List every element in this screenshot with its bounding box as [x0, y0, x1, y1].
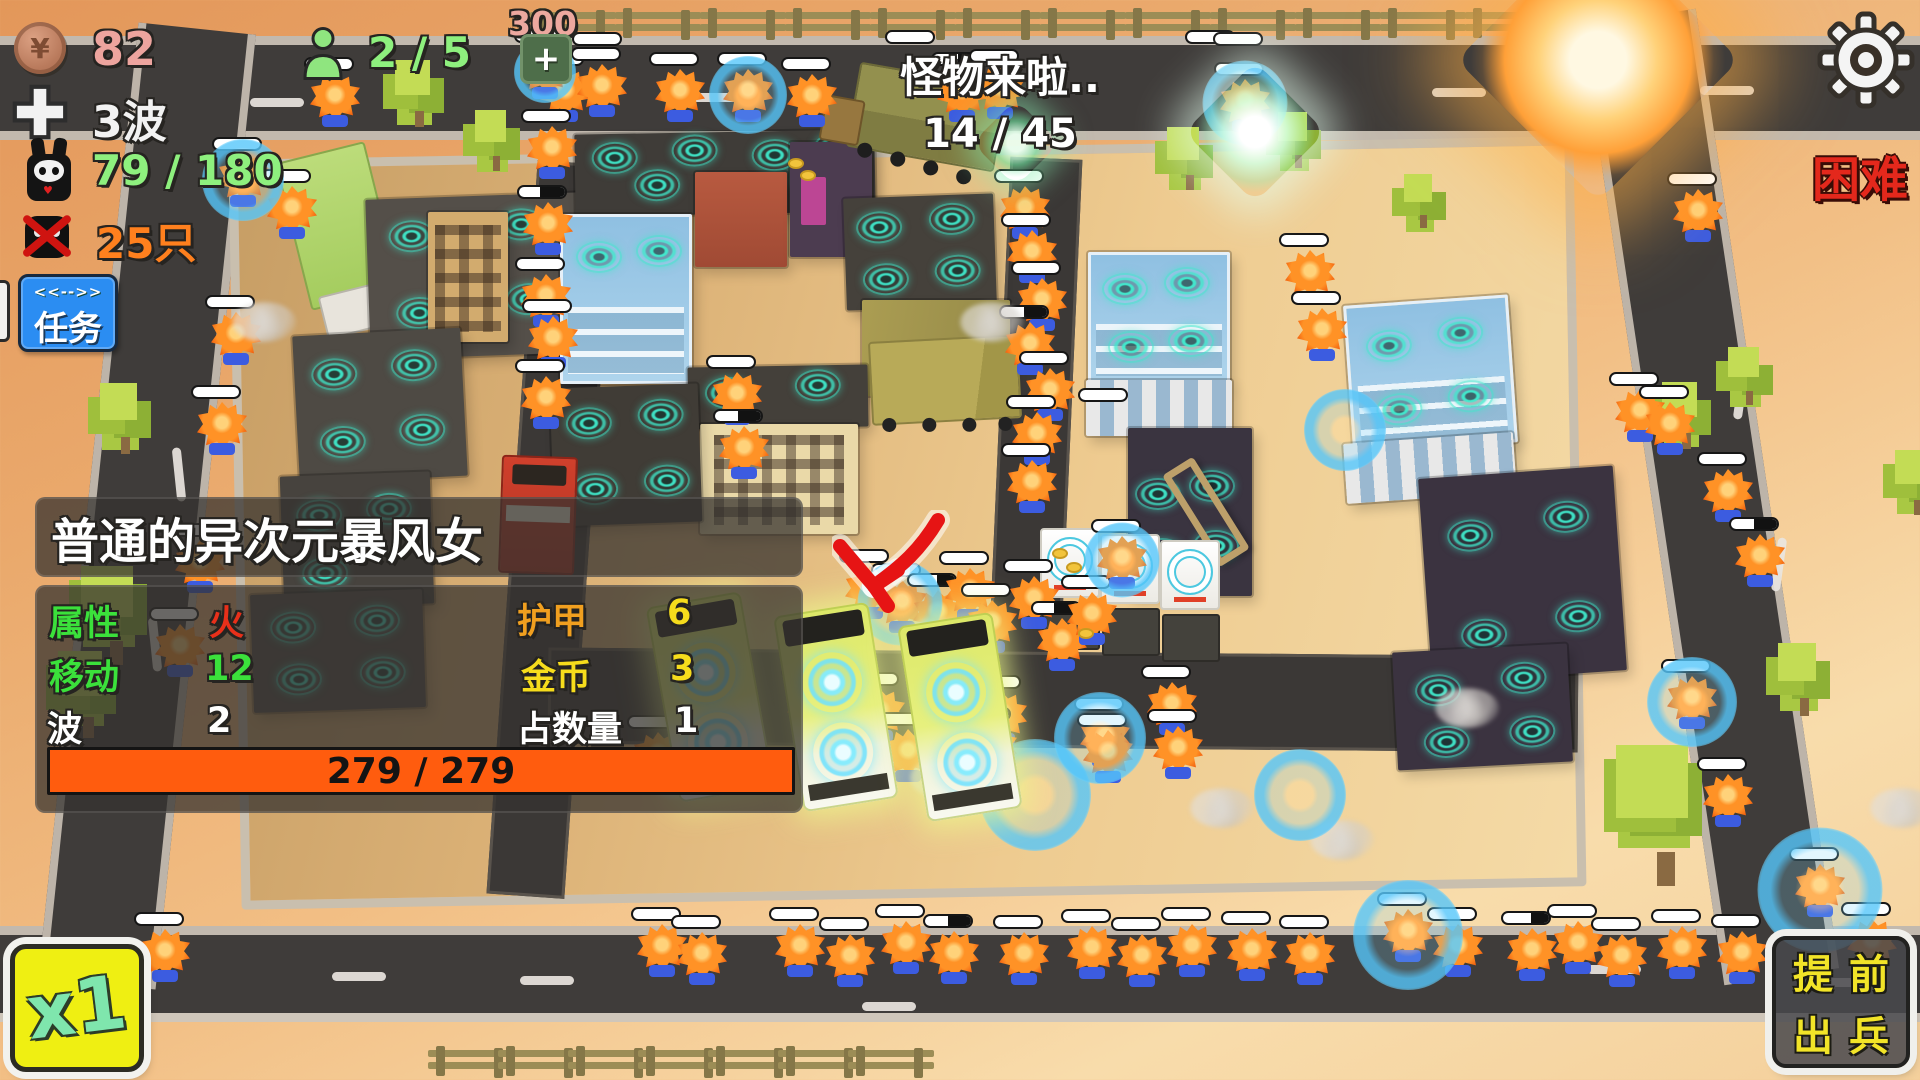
monster-hp-bar [961, 583, 1011, 597]
early-deploy-button[interactable]: 提前 出兵 [1772, 936, 1910, 1068]
monster-hp-bar [1006, 395, 1056, 409]
shield-bubble [1254, 749, 1346, 841]
fire-monster[interactable] [306, 72, 364, 128]
building[interactable] [292, 328, 468, 485]
turret-icon [1542, 499, 1590, 534]
stat-value-occupy: 1 [674, 701, 698, 741]
stat-label-gold: 金币 [521, 649, 591, 700]
lane-marking [1432, 88, 1486, 97]
fire-monster[interactable] [995, 930, 1053, 986]
turret-icon [1500, 661, 1548, 695]
fire-monster[interactable] [925, 929, 983, 985]
monster-hp-bar [1221, 911, 1271, 925]
dropped-coin [1066, 562, 1082, 573]
stat-label-armor: 护甲 [517, 593, 587, 644]
fire-monster[interactable] [1713, 929, 1771, 985]
monster-hp-bar [1213, 32, 1263, 46]
task-button[interactable]: <<-->> 任务 [18, 274, 118, 352]
unit-info-title-panel: 普通的异次元暴风女 [35, 497, 803, 577]
turret-icon [319, 425, 367, 459]
dropped-coin [1078, 628, 1094, 639]
smoke-puff [1870, 788, 1920, 828]
lane-marking [250, 98, 304, 107]
monster-hp-bar [517, 185, 567, 199]
tree [1888, 448, 1920, 508]
turret-icon [576, 241, 622, 273]
dropped-coin [788, 158, 804, 169]
dropped-coin [1052, 548, 1068, 559]
stat-label-occupy: 占数量 [517, 701, 622, 752]
unit-info-stats-panel: 属性 火 护甲 6 移动 12 金币 3 波 2 占数量 1 279 / 279 [35, 585, 803, 813]
fence-icon [955, 8, 1041, 38]
monster-hp-bar [515, 359, 565, 373]
fire-monster[interactable] [1641, 400, 1699, 456]
side-panel-edge[interactable] [0, 280, 10, 342]
shield-bubble [1054, 692, 1146, 784]
monster-hp-bar [885, 30, 935, 44]
deploy-label-line1: 提前 [1793, 942, 1905, 1000]
unit-name: 普通的异次元暴风女 [51, 502, 483, 572]
monster-hp-bar [1609, 372, 1659, 386]
coin-count: 82 [92, 22, 156, 76]
turret-icon [634, 169, 681, 202]
person-icon [298, 24, 348, 80]
monster-hp-bar [1111, 917, 1161, 931]
monster-hp-bar [1711, 914, 1761, 928]
shield-bubble [1304, 389, 1386, 471]
turret-icon [1423, 725, 1471, 759]
announcement-progress: 14 / 45 [790, 111, 1210, 157]
kill-count: 79 / 180 [92, 146, 283, 195]
tree [468, 108, 524, 164]
fire-monster[interactable] [1293, 306, 1351, 362]
monster-hp-bar [1639, 385, 1689, 399]
monster-hp-bar [515, 257, 565, 271]
shield-bubble [709, 56, 787, 134]
population-count: 2 / 5 [368, 28, 471, 77]
turret-icon [310, 357, 358, 391]
turret-icon [636, 235, 682, 267]
monster-hp-bar [1697, 757, 1747, 771]
stat-value-attribute: 火 [209, 595, 244, 646]
fire-monster[interactable] [1593, 932, 1651, 988]
monster-hp-bar [1061, 909, 1111, 923]
turret-icon [1164, 267, 1210, 299]
fire-monster[interactable] [1699, 772, 1757, 828]
monsters-left-count: 25只 [96, 210, 196, 271]
fence-icon [848, 1046, 934, 1076]
fire-monster[interactable] [715, 424, 773, 480]
speed-label: x1 [23, 959, 132, 1056]
monster-announcement: 怪物来啦.. 14 / 45 [790, 44, 1210, 157]
red-arrow-marker [832, 510, 952, 620]
stat-value-gold: 3 [670, 649, 694, 689]
lane-marking [520, 976, 574, 985]
monster-hp-bar [1019, 351, 1069, 365]
add-unit-button[interactable]: + [520, 34, 572, 84]
fence-icon [1295, 8, 1381, 38]
building[interactable] [695, 172, 787, 267]
monster-hp-bar [1501, 911, 1551, 925]
stat-value-wave: 2 [207, 701, 231, 741]
turret-icon [862, 262, 909, 296]
gear-icon[interactable] [1816, 10, 1916, 110]
unit-hp-bar: 279 / 279 [47, 747, 795, 795]
dropped-coin [800, 170, 816, 181]
monster-hp-bar [1697, 452, 1747, 466]
turret-icon [934, 254, 981, 288]
monster-hp-bar [1729, 517, 1779, 531]
fence-icon [615, 8, 701, 38]
turret-icon [1108, 331, 1154, 363]
turret-icon [390, 348, 438, 382]
turret-icon [1168, 325, 1214, 357]
deploy-label-line2: 出兵 [1793, 1004, 1905, 1062]
announcement-text: 怪物来啦.. [790, 44, 1210, 105]
monster-hp-bar [521, 109, 571, 123]
lane-marking [332, 972, 386, 981]
gold-truck[interactable] [868, 334, 1022, 426]
monster-hp-bar [993, 915, 1043, 929]
monster-hp-bar [1001, 443, 1051, 457]
monster-hp-bar [706, 355, 756, 369]
fire-monster[interactable] [1669, 187, 1727, 243]
task-button-label: 任务 [21, 301, 115, 350]
monster-hp-bar [134, 912, 184, 926]
fire-monster[interactable] [1003, 458, 1061, 514]
monster-hp-bar [572, 32, 622, 46]
game-speed-button[interactable]: x1 [10, 944, 144, 1072]
rabbit-skull-icon: ♥ [26, 138, 72, 202]
no-monster-icon [20, 208, 74, 262]
monster-hp-bar [191, 385, 241, 399]
shield-bubble [1758, 828, 1883, 953]
turret-icon [398, 413, 446, 447]
rabbit-skull-face [34, 160, 64, 182]
lane-marking [862, 1002, 916, 1011]
difficulty-badge: 困难 [1812, 140, 1908, 210]
monster-hp-bar [1078, 388, 1128, 402]
tree [1770, 640, 1838, 708]
turret-icon [637, 398, 684, 432]
turret-icon [1365, 328, 1413, 363]
fire-monster[interactable] [1063, 590, 1121, 646]
fire-monster[interactable] [1149, 724, 1207, 780]
turret-icon [1509, 714, 1557, 748]
fence-icon [1040, 8, 1126, 38]
monster-hp-bar [1651, 909, 1701, 923]
monster-hp-bar [1001, 213, 1051, 227]
shield-bubble [1085, 523, 1160, 598]
smoke-puff [1435, 688, 1499, 728]
stat-value-movement: 12 [205, 649, 254, 689]
shield-bubble [1647, 657, 1737, 747]
energy-ring-icon [798, 648, 867, 717]
monster-hp-bar [769, 907, 819, 921]
monster-hp-bar [649, 52, 699, 66]
smoke-puff [1190, 788, 1254, 828]
fire-monster[interactable] [573, 62, 631, 118]
turret-icon [1554, 599, 1602, 634]
energy-ring-icon [922, 658, 991, 727]
smoke-puff [232, 302, 296, 342]
stat-value-armor: 6 [667, 593, 691, 633]
monster-hp-bar [1291, 291, 1341, 305]
monster-hp-bar [1011, 261, 1061, 275]
plus-icon: + [532, 39, 561, 79]
plus-wave-icon [10, 82, 70, 142]
fire-monster[interactable] [1223, 926, 1281, 982]
monster-hp-bar [1147, 709, 1197, 723]
fire-monster[interactable] [193, 400, 251, 456]
fire-monster[interactable] [136, 927, 194, 983]
turret-icon [1436, 315, 1484, 350]
turret-icon [643, 464, 690, 498]
monster-hp-bar [571, 47, 621, 61]
monster-hp-bar [923, 914, 973, 928]
monster-hp-bar [1547, 904, 1597, 918]
shield-bubble [1353, 880, 1463, 990]
turret-icon [1446, 518, 1494, 553]
fence-icon [1380, 8, 1466, 38]
turret-icon [1102, 273, 1148, 305]
fire-monster[interactable] [821, 932, 879, 988]
coin-icon: ¥ [14, 22, 66, 74]
monster-hp-bar [1591, 917, 1641, 931]
tree [1398, 172, 1448, 222]
fire-monster[interactable] [1731, 532, 1789, 588]
fire-monster[interactable] [1699, 467, 1757, 523]
turret-icon [856, 211, 903, 245]
monster-hp-bar [1667, 172, 1717, 186]
heart-icon: ♥ [43, 184, 53, 197]
monster-hp-bar [1141, 665, 1191, 679]
turret-icon [591, 142, 638, 175]
turret-icon [928, 202, 975, 236]
monster-hp-bar [819, 917, 869, 931]
energy-ring-icon [933, 728, 1002, 797]
monster-hp-bar [875, 904, 925, 918]
monster-hp-bar [522, 299, 572, 313]
tree [92, 380, 158, 446]
stat-label-attribute: 属性 [49, 595, 119, 646]
turret-icon [671, 134, 718, 167]
monster-hp-bar [1279, 233, 1329, 247]
stat-label-wave: 波 [47, 701, 82, 752]
fire-monster[interactable] [519, 200, 577, 256]
stat-label-movement: 移动 [49, 649, 119, 700]
monster-hp-bar [671, 915, 721, 929]
fence-icon [785, 8, 871, 38]
defense-unit[interactable] [1160, 540, 1220, 610]
turret-icon [1447, 379, 1495, 414]
fire-monster[interactable] [673, 930, 731, 986]
coin-symbol: ¥ [30, 32, 49, 65]
fire-monster[interactable] [1163, 922, 1221, 978]
monster-hp-bar [1003, 559, 1053, 573]
fence-icon [700, 8, 786, 38]
fire-monster[interactable] [1653, 924, 1711, 980]
tree [1722, 345, 1776, 399]
fire-monster[interactable] [1281, 930, 1339, 986]
monster-hp-bar [1279, 915, 1329, 929]
energy-ring-icon [809, 718, 878, 787]
wave-count: 3波 [92, 86, 167, 150]
building[interactable] [1088, 252, 1230, 384]
building[interactable] [843, 193, 997, 310]
monster-hp-bar [713, 409, 763, 423]
unit-hp-text: 279 / 279 [327, 751, 516, 792]
defense-unit-base [1162, 614, 1220, 662]
turret-icon [795, 369, 842, 402]
fire-monster[interactable] [523, 124, 581, 180]
building[interactable] [428, 212, 508, 342]
fire-monster[interactable] [651, 67, 709, 123]
fire-monster[interactable] [517, 374, 575, 430]
smoke-puff [960, 302, 1024, 342]
monster-hp-bar [1161, 907, 1211, 921]
task-button-arrows: <<-->> [21, 283, 115, 301]
